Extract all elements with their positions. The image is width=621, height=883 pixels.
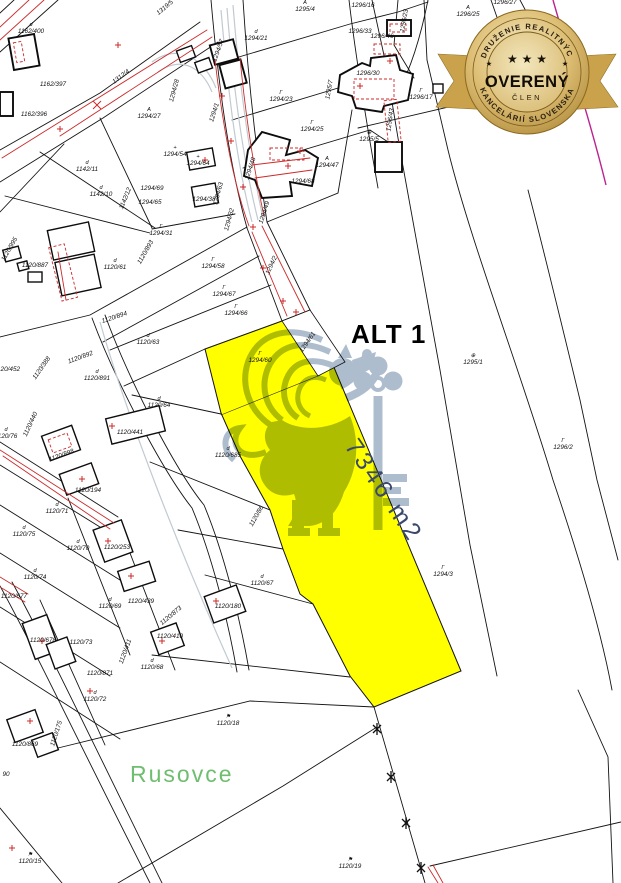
- parcel-label: 1294/1: [208, 102, 221, 123]
- parcel-label: 1120/61: [104, 264, 127, 271]
- parcel-label: 1120/871: [87, 670, 114, 677]
- parcel-label: 1120/893: [136, 239, 155, 266]
- badge-star-right: ★: [562, 60, 568, 68]
- parcel-label: 1294/68: [291, 178, 315, 185]
- parcel-symbol: A: [324, 156, 329, 162]
- parcel-symbol: ⚑: [27, 851, 32, 858]
- parcel-symbol: ⊕: [367, 130, 372, 136]
- parcel-label: 1120/67: [251, 580, 274, 587]
- parcel-label: 1294/47: [315, 162, 339, 169]
- parcel-label: 1294/21: [244, 35, 268, 42]
- parcel-label: 1294/32: [223, 207, 236, 232]
- parcel-symbol: ⊕: [471, 353, 476, 359]
- parcel-label: 1142/12: [118, 186, 133, 210]
- parcel-label: 1120/869: [12, 741, 39, 748]
- verified-badge: ZDRUŽENIE REALITNÝCH KANCELÁRIÍ SLOVENSK…: [0, 0, 618, 134]
- parcel-label: 1294/28: [168, 78, 181, 103]
- parcel-label: 1294/54: [163, 151, 187, 158]
- parcel-label: 1120/388: [31, 355, 52, 381]
- parcel-label: 1296/25: [456, 11, 480, 18]
- parcel-label: 1162/397: [40, 81, 67, 88]
- parcel-label: 1120/440: [22, 411, 40, 438]
- parcel-label: 1142/10: [90, 191, 113, 198]
- parcel-label: 1295/4: [295, 6, 315, 13]
- parcel-label: 1120/71: [46, 508, 69, 515]
- parcel-symbol: ⚑: [225, 713, 230, 720]
- parcel-label: 1120/892: [67, 350, 94, 366]
- parcel-label: 1120/677: [1, 593, 28, 600]
- parcel-label: 1120/76: [0, 433, 18, 440]
- parcel-label: 1294/58: [201, 263, 225, 270]
- place-name-label: Rusovce: [130, 761, 233, 787]
- parcel-symbol: ⚑: [347, 856, 352, 863]
- parcel-label: 1120/19: [339, 863, 362, 870]
- alt-1-label: ALT 1: [351, 319, 426, 349]
- parcel-label: 1120/63: [137, 339, 160, 346]
- parcel-label: 1120/891: [84, 375, 111, 382]
- parcel-label: 1142/11: [76, 166, 99, 173]
- parcel-symbol: A: [146, 107, 151, 113]
- parcel-label: 1296/17: [409, 94, 433, 101]
- parcel-label: 1296/46: [370, 33, 394, 40]
- parcel-label: 1120/410: [157, 633, 184, 640]
- parcel-label: 1120/894: [101, 310, 128, 325]
- parcel-label: 1294/69: [140, 185, 164, 192]
- parcel-label: 1120/452: [0, 366, 21, 373]
- parcel-label: 1120/69: [99, 603, 122, 610]
- parcel-symbol: A: [465, 5, 470, 11]
- parcel-label: 1294/2: [264, 255, 279, 276]
- parcel-label: 1120/194: [75, 487, 102, 494]
- parcel-label: 1294/66: [224, 310, 248, 317]
- badge-star-left: ★: [486, 60, 492, 68]
- parcel-label: 1294/25: [300, 126, 324, 133]
- parcel-label: 1120/86: [248, 504, 266, 527]
- parcel-label: 1120/180: [215, 603, 242, 610]
- parcel-label: 1120/64: [148, 402, 171, 409]
- parcel-label: 1312/4: [111, 68, 131, 86]
- parcel-label: 1120/411: [118, 638, 134, 665]
- parcel-label: 1120/15: [19, 858, 42, 865]
- parcel-label: 1294/65: [138, 199, 162, 206]
- parcel-label: 1296/16: [351, 2, 375, 9]
- parcel-label: 1162/396: [21, 111, 48, 118]
- parcel-label: 1296/2: [553, 444, 573, 451]
- parcel-label: 1296/33: [348, 28, 372, 35]
- parcel-label: 1120/685: [215, 452, 242, 459]
- parcel-label: 1120/441: [117, 429, 144, 436]
- parcel-label: 1120/75: [13, 531, 36, 538]
- parcel-label: 1120/73: [70, 639, 93, 646]
- parcel-label: 90: [2, 771, 10, 778]
- parcel-label: 1120/887: [22, 262, 49, 269]
- parcel-label: 1294/67: [212, 291, 236, 298]
- badge-stars: ★ ★ ★: [507, 52, 547, 66]
- badge-subtitle: ČLEN: [512, 93, 542, 102]
- cadastral-map: ALT 1 7346 m2 Rusovce 1162/400d1162/3971…: [0, 0, 621, 883]
- parcel-label: 1295/5: [359, 136, 379, 143]
- parcel-label: 1294/3: [433, 571, 453, 578]
- parcel-label: 1120/439: [128, 598, 155, 605]
- parcel-label: 1162/400: [18, 28, 45, 35]
- parcel-label: 1294/27: [137, 113, 161, 120]
- boundary-x-marks: [373, 723, 425, 874]
- parcel-label: 1120/253: [104, 544, 131, 551]
- parcel-symbol: A: [302, 0, 307, 6]
- parcel-label: 1120/873: [159, 604, 184, 626]
- parcel-label: 1294/64: [186, 160, 210, 167]
- parcel-label: 1294/60: [248, 357, 272, 364]
- parcel-label: 1295/1: [463, 359, 483, 366]
- parcel-label: 1120/68: [141, 664, 164, 671]
- parcel-label: 1120/678: [30, 637, 57, 644]
- parcel-label: 1294/23: [269, 96, 293, 103]
- parcel-label: 1296/30: [356, 70, 380, 77]
- parcel-label: 1120/70: [67, 545, 90, 552]
- parcel-label: 1294/31: [149, 230, 173, 237]
- parcel-label: 1120/72: [84, 696, 107, 703]
- badge-title: OVERENÝ: [485, 72, 569, 91]
- parcel-label: 1120/74: [24, 574, 47, 581]
- parcel-label: 1296/27: [493, 0, 517, 6]
- parcel-label: 1120/18: [217, 720, 240, 727]
- parcel-label: 1319/5: [155, 0, 175, 17]
